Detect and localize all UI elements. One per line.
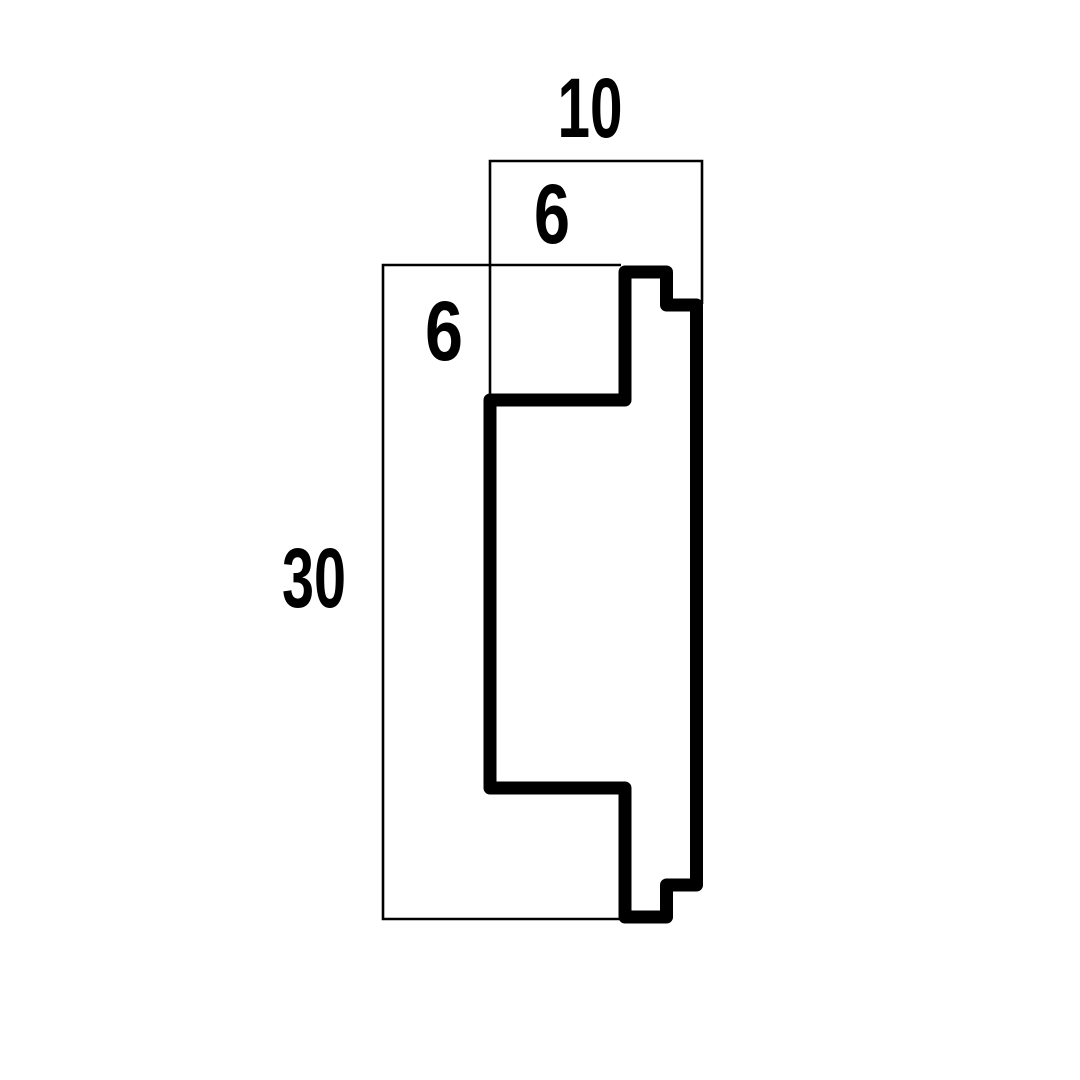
dim-label-left-inset: 6	[425, 284, 463, 378]
dimension-extent-box-left	[383, 265, 621, 919]
dim-label-overall-height: 30	[282, 531, 346, 625]
dim-label-top-height: 6	[534, 167, 570, 261]
profile-diagram: 10 6 6 30	[0, 0, 1080, 1080]
dim-label-top-width: 10	[558, 61, 623, 155]
drawing-canvas: 10 6 6 30	[0, 0, 1080, 1080]
profile-outline	[490, 272, 697, 917]
